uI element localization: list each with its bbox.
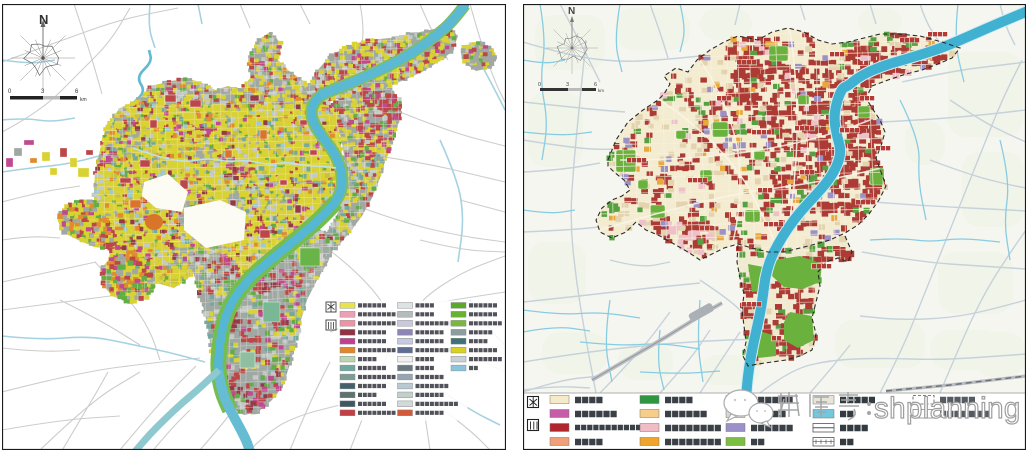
svg-text:N: N [568, 6, 575, 17]
svg-text:km: km [80, 97, 87, 103]
svg-text:km: km [598, 88, 604, 93]
svg-text:3: 3 [566, 82, 569, 88]
svg-text:0: 0 [538, 82, 541, 88]
svg-text:shplanning: shplanning [874, 392, 1021, 425]
svg-text:6: 6 [594, 82, 597, 88]
svg-text:N: N [39, 12, 48, 27]
